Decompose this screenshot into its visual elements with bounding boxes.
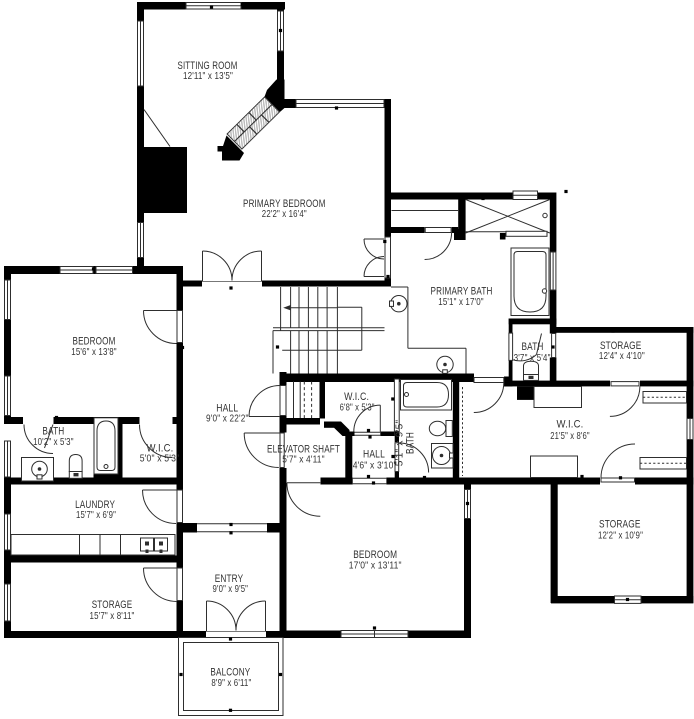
svg-text:W.I.C.: W.I.C. — [557, 419, 584, 431]
svg-text:22'2" x 16'4": 22'2" x 16'4" — [262, 208, 307, 220]
svg-text:15'6" x 13'8": 15'6" x 13'8" — [71, 346, 117, 358]
svg-text:8'9" x 6'11": 8'9" x 6'11" — [211, 677, 251, 689]
svg-text:15'1" x 17'0": 15'1" x 17'0" — [438, 296, 484, 308]
svg-text:17'0" x 13'11": 17'0" x 13'11" — [349, 560, 402, 572]
svg-text:15'7" x 8'11": 15'7" x 8'11" — [90, 610, 135, 622]
svg-text:15'7" x 6'9": 15'7" x 6'9" — [76, 509, 116, 521]
svg-text:5'1" x 9'5": 5'1" x 9'5" — [394, 420, 406, 467]
svg-text:10'2" x 5'3": 10'2" x 5'3" — [33, 436, 74, 448]
svg-text:9'0" x 9'5": 9'0" x 9'5" — [213, 583, 249, 595]
svg-text:6'8" x 5'3": 6'8" x 5'3" — [340, 402, 375, 414]
svg-text:21'5" x 8'6": 21'5" x 8'6" — [550, 430, 590, 442]
svg-text:12'11" x 13'5": 12'11" x 13'5" — [183, 70, 233, 82]
svg-text:12'2" x 10'9": 12'2" x 10'9" — [598, 530, 643, 542]
svg-text:12'4" x 4'10": 12'4" x 4'10" — [599, 350, 645, 362]
svg-text:3'7" x 5'4": 3'7" x 5'4" — [514, 352, 551, 364]
svg-text:5'7" x 4'11": 5'7" x 4'11" — [282, 454, 325, 466]
svg-text:9'0" x 22'2": 9'0" x 22'2" — [206, 413, 249, 425]
svg-text:4'6" x 3'10": 4'6" x 3'10" — [353, 460, 397, 472]
svg-text:5'0" x 5'3": 5'0" x 5'3" — [140, 453, 180, 465]
svg-text:BATH: BATH — [405, 432, 417, 454]
